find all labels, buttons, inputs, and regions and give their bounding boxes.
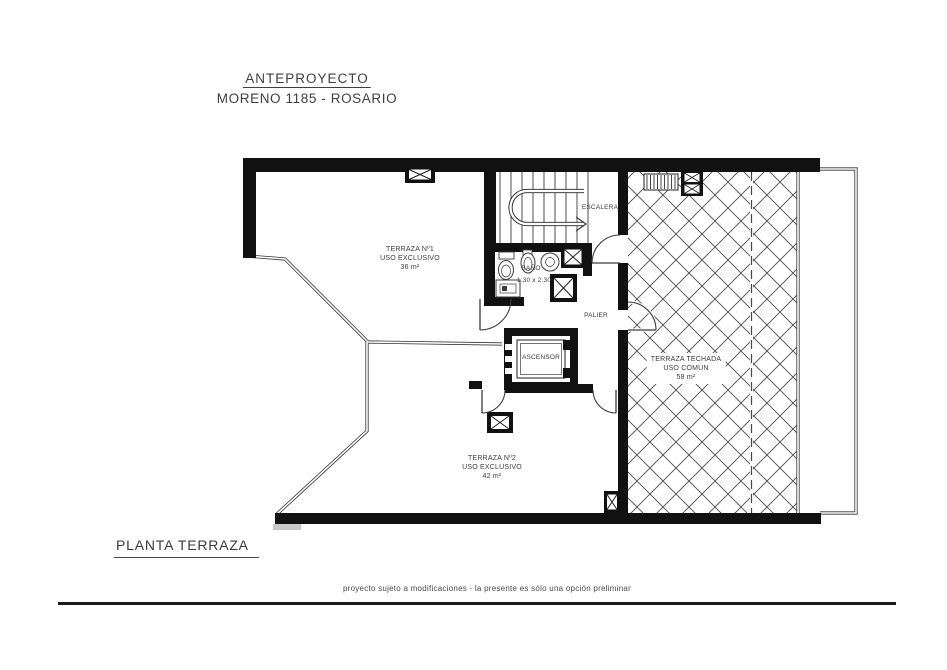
title-block: ANTEPROYECTO MORENO 1185 - ROSARIO	[217, 70, 397, 106]
room-label-banio: BAÑO	[521, 265, 540, 273]
drawing-sheet: ANTEPROYECTO MORENO 1185 - ROSARIO TERRA…	[0, 0, 947, 670]
room-label-terraza-techada: TERRAZA TECHADA USO COMÚN 58 m²	[647, 353, 726, 384]
room-label-ascensor: ASCENSOR	[522, 354, 560, 362]
wall-end-shadow	[273, 524, 301, 530]
room-label-escalera: ESCALERA	[582, 204, 618, 212]
toilet-tank-icon	[499, 252, 514, 259]
wall-right-seg2	[618, 263, 628, 310]
elevator-door-notch	[505, 356, 512, 362]
wall-top	[243, 158, 820, 172]
shaft-x-icon	[561, 246, 585, 268]
floor-plan-svg	[0, 0, 947, 670]
room-label-palier: PALIER	[584, 312, 608, 320]
elevator-rail	[563, 340, 570, 350]
wall-left	[243, 158, 256, 258]
wall-right-seg1	[618, 172, 628, 235]
door-arc-corridor	[592, 235, 620, 263]
shaft-x-icon	[405, 166, 435, 183]
vent-grille-icon	[644, 174, 678, 190]
wall-palier-south-stub	[469, 381, 482, 389]
bathroom-fixtures	[496, 250, 559, 297]
wall-bath-west	[484, 243, 495, 305]
wall-stair-west	[484, 172, 496, 252]
wall-right-seg3	[618, 330, 628, 513]
project-subtitle: MORENO 1185 - ROSARIO	[217, 91, 397, 106]
sheet-bottom-rule	[58, 602, 896, 605]
shaft-x-icon	[604, 491, 620, 513]
door-arc-palier-east	[593, 390, 616, 413]
stair-treads	[500, 172, 588, 243]
elevator-door-notch	[505, 344, 512, 350]
elevator-rail	[563, 368, 570, 378]
project-title: ANTEPROYECTO	[243, 71, 371, 88]
elevator-door-notch	[505, 368, 512, 374]
wall-bath-south	[484, 297, 524, 306]
staircase	[500, 172, 588, 243]
disclaimer-note: proyecto sujeto a modificaciones - la pr…	[343, 584, 631, 593]
double-shaft-x-icon	[681, 170, 703, 196]
stair-handrail	[511, 191, 585, 224]
plan-name: PLANTA TERRAZA	[114, 537, 259, 558]
shaft-x-icon	[550, 274, 577, 302]
wall-bottom	[275, 513, 821, 524]
covered-terrace-hatch	[628, 172, 798, 513]
room-label-terraza-1: TERRAZA Nº1 USO EXCLUSIVO 36 m²	[380, 245, 440, 272]
door-arc-palier-west	[482, 390, 505, 413]
room-label-terraza-2: TERRAZA Nº2 USO EXCLUSIVO 42 m²	[462, 454, 522, 481]
shaft-x-icon	[487, 412, 513, 433]
banio-dimensions: 1.30 x 2.30	[517, 277, 551, 285]
